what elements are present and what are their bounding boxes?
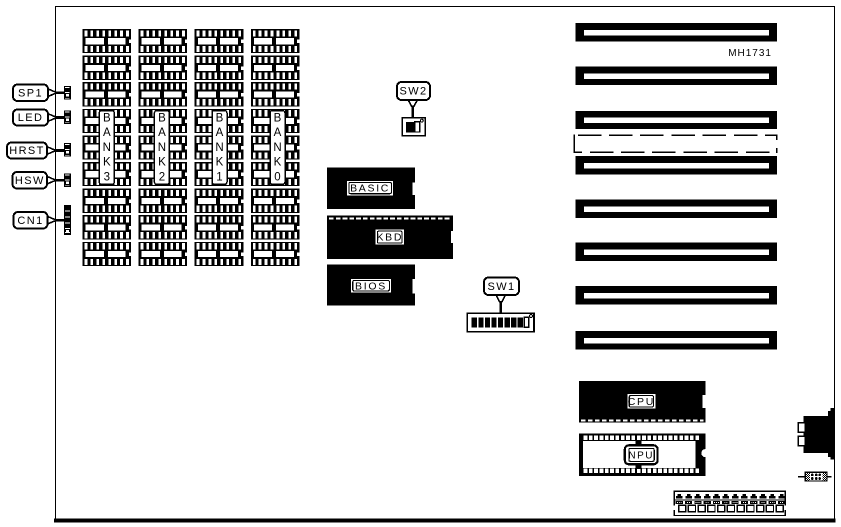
svg-text:MH1731: MH1731 [728,48,772,59]
svg-text:K: K [158,156,166,168]
svg-text:N: N [103,142,111,154]
svg-text:N: N [273,142,281,154]
svg-text:BASIC: BASIC [350,183,390,195]
svg-text:BIOS: BIOS [355,280,387,292]
svg-text:B: B [216,113,224,125]
svg-text:B: B [103,113,111,125]
svg-text:K: K [274,156,282,168]
svg-text:LED: LED [18,112,44,124]
svg-text:K: K [103,156,111,168]
svg-text:K: K [216,156,224,168]
svg-text:2: 2 [159,172,165,184]
svg-text:N: N [215,142,223,154]
svg-text:CN1: CN1 [17,215,43,227]
svg-text:B: B [158,113,166,125]
svg-text:KBD: KBD [376,232,403,244]
svg-text:N: N [158,142,166,154]
svg-text:A: A [103,127,111,139]
svg-text:A: A [274,127,282,139]
svg-text:A: A [216,127,224,139]
svg-text:0: 0 [274,172,280,184]
svg-text:SW2: SW2 [399,86,427,98]
svg-text:SW1: SW1 [487,281,515,293]
svg-text:HRST: HRST [9,145,45,157]
svg-text:1: 1 [216,172,222,184]
svg-text:A: A [158,127,166,139]
svg-text:SP1: SP1 [18,88,43,100]
svg-text:B: B [274,113,282,125]
svg-text:NPU: NPU [628,451,654,462]
svg-text:CPU: CPU [628,396,655,408]
svg-text:HSW: HSW [15,175,45,187]
svg-text:3: 3 [104,172,110,184]
